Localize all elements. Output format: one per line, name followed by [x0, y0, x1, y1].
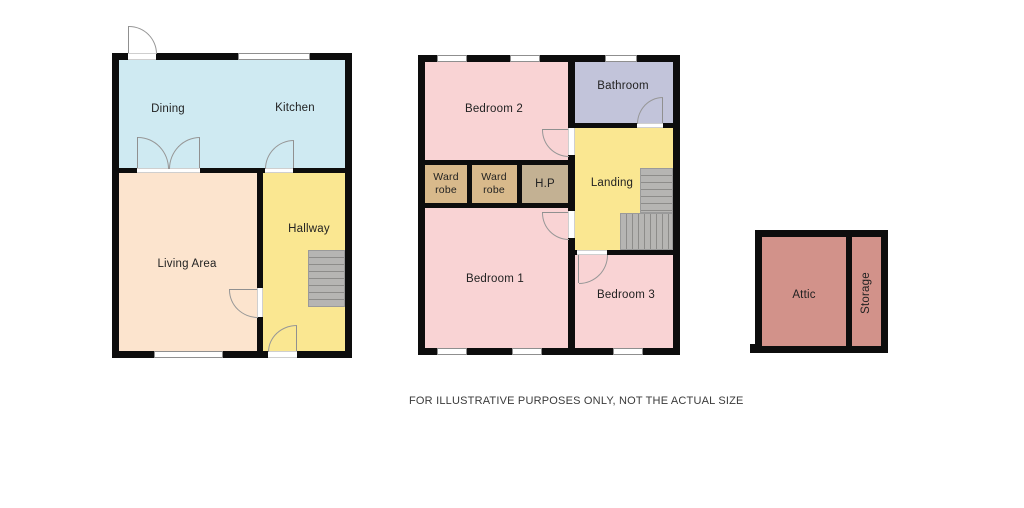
label-living-area: Living Area	[157, 258, 216, 270]
floorplan-canvas: Dining Kitchen Living Area Hallway	[0, 0, 1024, 508]
label-bedroom-3: Bedroom 3	[597, 289, 655, 301]
label-bathroom: Bathroom	[597, 80, 648, 92]
window-bedroom1-bottom-left	[437, 348, 467, 355]
hallway-entrance-door-gap	[268, 351, 297, 358]
window-dining-top	[238, 53, 310, 60]
label-bedroom-2: Bedroom 2	[465, 103, 523, 115]
window-bathroom-top	[605, 55, 637, 62]
label-attic: Attic	[792, 289, 815, 301]
bedroom2-door-gap	[568, 128, 575, 155]
disclaimer-text: FOR ILLUSTRATIVE PURPOSES ONLY, NOT THE …	[409, 395, 711, 407]
stairs-landing-upper	[640, 168, 673, 213]
window-bedroom1-bottom-right	[512, 348, 542, 355]
label-storage: Storage	[860, 272, 872, 314]
label-bedroom-1: Bedroom 1	[466, 273, 524, 285]
label-hallway: Hallway	[288, 223, 330, 235]
label-landing: Landing	[591, 177, 633, 189]
ground-floor-plan: Dining Kitchen Living Area Hallway	[112, 53, 352, 358]
first-floor-plan: Bedroom 2 Bathroom Ward robe Ward robe H…	[418, 55, 680, 355]
front-door-gap	[128, 53, 156, 60]
stairs-landing-lower	[620, 213, 673, 250]
label-wardrobe-1: Ward robe	[424, 171, 468, 197]
stairs-hallway	[308, 250, 345, 307]
attic-plan: Attic Storage	[755, 230, 888, 353]
window-bedroom3-bottom	[613, 348, 643, 355]
wall-notch	[750, 344, 759, 353]
label-hp: H.P	[535, 178, 555, 190]
window-bedroom2-top-right	[510, 55, 540, 62]
front-door-arc	[129, 26, 157, 54]
window-living-bottom	[154, 351, 223, 358]
window-bedroom2-top-left	[437, 55, 467, 62]
label-kitchen: Kitchen	[275, 102, 315, 114]
label-dining: Dining	[151, 103, 185, 115]
label-wardrobe-2: Ward robe	[472, 171, 516, 197]
bedroom1-door-gap	[568, 211, 575, 238]
